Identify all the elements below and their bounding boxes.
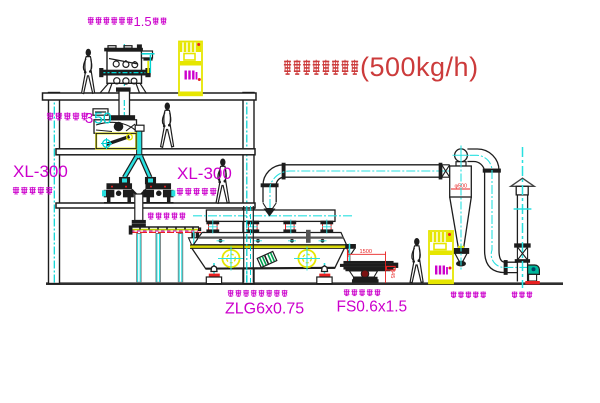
svg-text:(500kg/h): (500kg/h) — [360, 52, 479, 82]
svg-text:50: 50 — [94, 111, 112, 128]
svg-text:345: 345 — [389, 269, 395, 278]
svg-text:3: 3 — [85, 110, 93, 127]
svg-text:1.5: 1.5 — [134, 14, 152, 29]
svg-text:FS0.6x1.5: FS0.6x1.5 — [337, 299, 408, 316]
svg-text:XL-300: XL-300 — [13, 162, 68, 181]
svg-text:XL-300: XL-300 — [177, 164, 232, 183]
svg-text:1500: 1500 — [360, 249, 372, 255]
svg-text:ZLG6x0.75: ZLG6x0.75 — [225, 301, 304, 318]
